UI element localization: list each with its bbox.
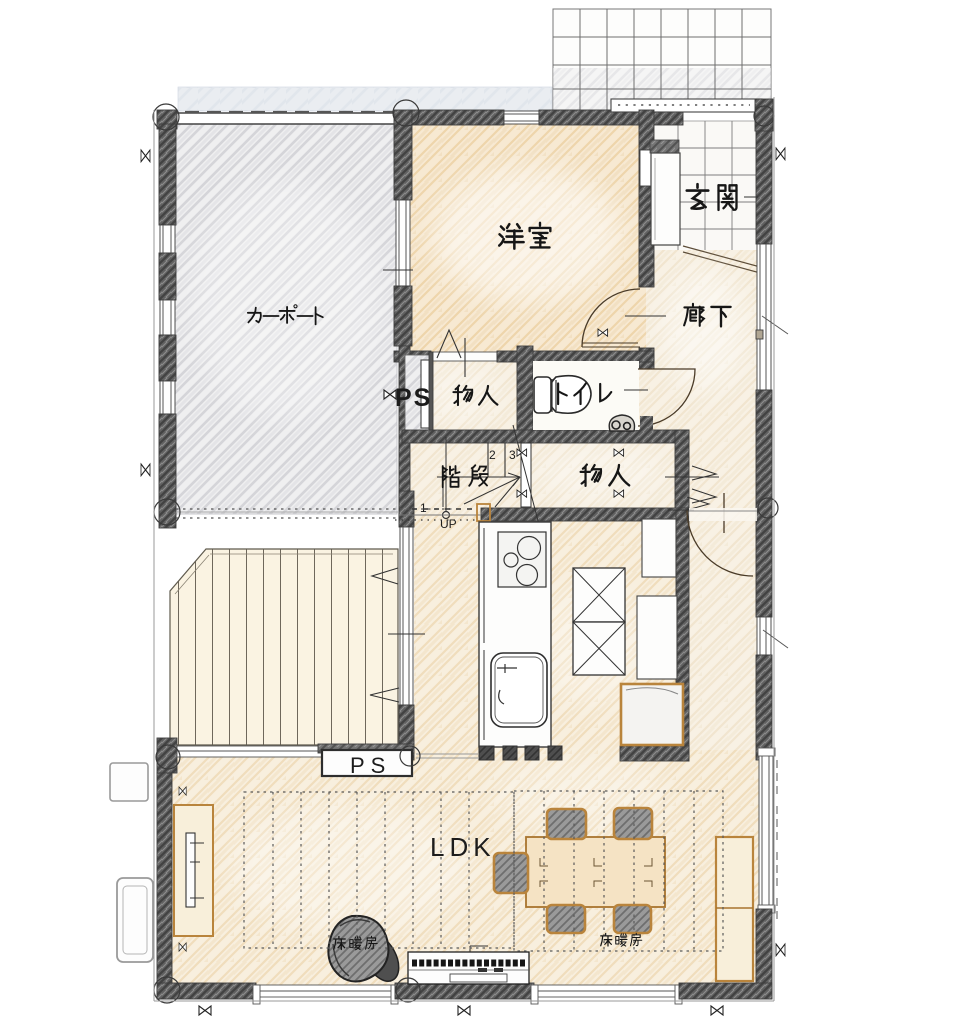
svg-text:2: 2 — [489, 448, 496, 462]
svg-text:3: 3 — [509, 448, 516, 462]
svg-text:PS: PS — [395, 384, 432, 412]
svg-text:LDK: LDK — [430, 832, 496, 862]
svg-text:PS: PS — [350, 753, 391, 778]
svg-text:UP: UP — [440, 517, 457, 531]
svg-text:1: 1 — [420, 501, 427, 515]
